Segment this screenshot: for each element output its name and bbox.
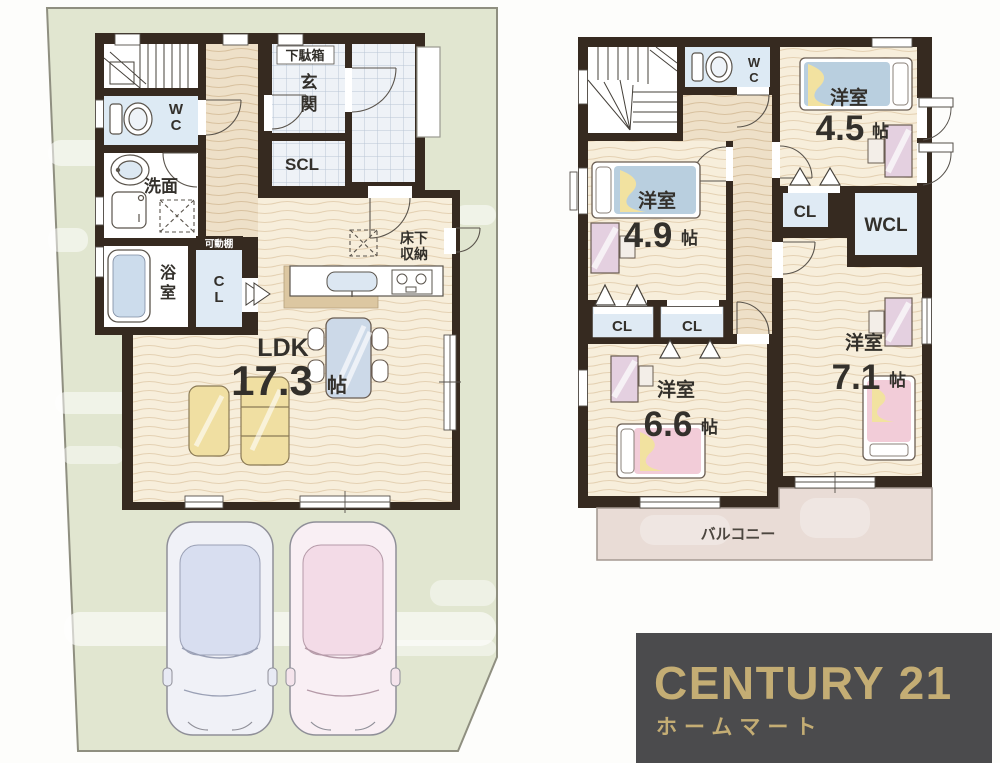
closet-a-label: CL: [612, 318, 632, 335]
logo-brand-text: CENTURY 21: [654, 657, 953, 709]
floor-plan-canvas: 下駄箱 玄 関 SCL W C 洗面 浴 室 C L 可動棚 床下 収納 LDK…: [0, 0, 1000, 763]
closet-b-label: CL: [682, 318, 702, 335]
closet1f-label-c: C: [214, 273, 225, 290]
underfloor-label-1: 床下: [400, 230, 428, 246]
room45-label: 洋室: [830, 86, 868, 109]
balcony-label: バルコニー: [701, 526, 776, 543]
movable-shelf-label: 可動棚: [205, 238, 234, 250]
room49-label: 洋室: [638, 189, 676, 212]
kitchen-sink-icon: [327, 272, 377, 291]
floor-plan-flyer: 下駄箱 玄 関 SCL W C 洗面 浴 室 C L 可動棚 床下 収納 LDK…: [0, 0, 1000, 763]
ldk-unit: 帖: [327, 374, 347, 397]
toilet-icon-2f: [692, 52, 732, 82]
wcl-label: WCL: [864, 215, 908, 236]
wc2-label-c: C: [749, 70, 759, 85]
scl-label: SCL: [285, 155, 319, 174]
room71-size: 7.1: [832, 358, 881, 397]
porch-tile-grid: [352, 44, 415, 182]
corridor-2f-texture: [733, 141, 772, 334]
room66-label: 洋室: [657, 378, 695, 401]
room71-unit: 帖: [889, 370, 906, 390]
washroom-label: 洗面: [144, 176, 178, 196]
wc-label-w: W: [169, 101, 184, 118]
stairs-room: [104, 44, 198, 88]
car-pink: [286, 522, 400, 735]
room45-size: 4.5: [816, 109, 865, 148]
logo-store-text: ホームマート: [656, 716, 823, 739]
brand-logo: CENTURY 21 ホームマート: [636, 633, 992, 763]
closet1f-label-l: L: [214, 289, 223, 306]
washing-machine-icon: [112, 192, 146, 228]
room45-unit: 帖: [872, 121, 889, 141]
room49-size: 4.9: [624, 216, 673, 255]
room66-unit: 帖: [701, 417, 718, 437]
wc2-label-w: W: [748, 55, 761, 70]
car-blue: [163, 522, 277, 735]
balcony-texture-2: [800, 498, 870, 538]
closet-mid-label: CL: [794, 202, 817, 221]
bath-label-1: 浴: [160, 263, 177, 282]
floor2-plan: W C 洋室 4.5 帖 洋室 4.9 帖 洋室 6.6 帖 洋室 7.1 帖 …: [570, 37, 953, 560]
entrance-label-1: 玄: [301, 72, 318, 92]
floor1-plan: 下駄箱 玄 関 SCL W C 洗面 浴 室 C L 可動棚 床下 収納 LDK…: [95, 33, 480, 513]
toilet-icon: [110, 103, 152, 135]
underfloor-label-2: 収納: [400, 246, 428, 262]
room49-unit: 帖: [681, 228, 698, 248]
wc-label-c: C: [171, 117, 182, 134]
hall-1f-texture: [206, 44, 258, 237]
room66-size: 6.6: [644, 405, 693, 444]
bath-label-2: 室: [160, 283, 176, 302]
room71-label: 洋室: [845, 331, 883, 354]
ldk-size: 17.3: [231, 357, 313, 404]
entrance-label-2: 関: [301, 95, 318, 114]
bathtub-icon: [108, 250, 150, 322]
shoe-box-label: 下駄箱: [285, 48, 324, 63]
porch-step: [417, 47, 440, 137]
stove-icon: [392, 270, 432, 294]
